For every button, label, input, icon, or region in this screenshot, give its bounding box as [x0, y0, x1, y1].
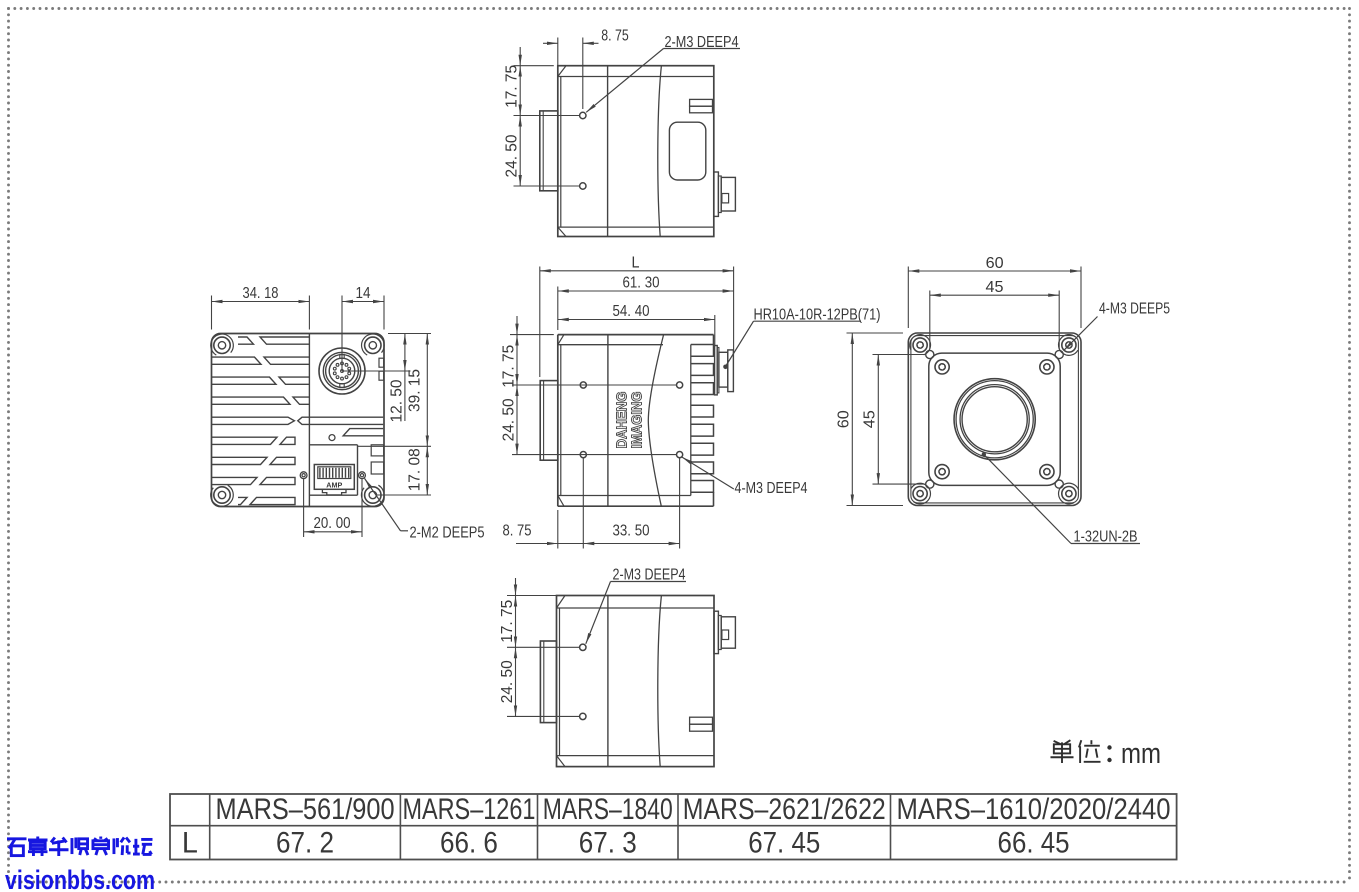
svg-text:17. 75: 17. 75	[500, 345, 517, 388]
svg-text:12. 50: 12. 50	[388, 379, 405, 422]
svg-text:MARS–1261: MARS–1261	[402, 793, 535, 826]
svg-text:HR10A-10R-12PB(71): HR10A-10R-12PB(71)	[754, 306, 881, 323]
svg-text:45: 45	[986, 279, 1004, 296]
svg-text:24. 50: 24. 50	[500, 398, 517, 441]
svg-text:2-M2 DEEP5: 2-M2 DEEP5	[410, 524, 485, 541]
svg-text:24. 50: 24. 50	[504, 134, 521, 177]
svg-text:2-M3 DEEP4: 2-M3 DEEP4	[613, 566, 686, 583]
svg-text:67. 45: 67. 45	[748, 826, 820, 859]
svg-text:60: 60	[986, 255, 1004, 272]
svg-text:MARS–561/900: MARS–561/900	[216, 793, 395, 826]
svg-text:AMP: AMP	[326, 481, 342, 490]
svg-text:MARS–1840: MARS–1840	[543, 793, 673, 826]
svg-text:IMAGING: IMAGING	[630, 392, 646, 449]
svg-text:20. 00: 20. 00	[314, 515, 351, 532]
svg-text:67. 3: 67. 3	[579, 826, 637, 859]
svg-text:24. 50: 24. 50	[499, 660, 516, 703]
svg-text:66. 6: 66. 6	[440, 826, 498, 859]
svg-text:MARS–2621/2622: MARS–2621/2622	[683, 793, 886, 826]
svg-text:L: L	[182, 826, 198, 859]
svg-text:MARS–1610/2020/2440: MARS–1610/2020/2440	[897, 793, 1171, 826]
svg-text:17. 75: 17. 75	[504, 65, 521, 108]
svg-text:8. 75: 8. 75	[503, 523, 532, 540]
svg-text:67. 2: 67. 2	[276, 826, 334, 859]
svg-text:61. 30: 61. 30	[623, 275, 660, 292]
svg-text:DAHENG: DAHENG	[615, 392, 631, 449]
svg-text:mm: mm	[1121, 738, 1161, 770]
svg-text:1-32UN-2B: 1-32UN-2B	[1074, 529, 1138, 546]
svg-text:4-M3 DEEP5: 4-M3 DEEP5	[1099, 301, 1170, 318]
svg-text:60: 60	[836, 410, 853, 428]
svg-text:54. 40: 54. 40	[613, 303, 650, 320]
svg-text:45: 45	[862, 410, 879, 428]
svg-text:66. 45: 66. 45	[998, 826, 1070, 859]
svg-text:2-M3 DEEP4: 2-M3 DEEP4	[665, 34, 739, 51]
svg-text:17. 75: 17. 75	[499, 600, 516, 643]
svg-text:39. 15: 39. 15	[407, 369, 424, 412]
svg-text:14: 14	[356, 285, 371, 302]
svg-text:17. 08: 17. 08	[407, 448, 424, 491]
svg-text:33. 50: 33. 50	[613, 523, 650, 540]
svg-text:34. 18: 34. 18	[243, 285, 279, 302]
svg-text:visionbbs.com: visionbbs.com	[5, 865, 155, 892]
svg-text:4-M3 DEEP4: 4-M3 DEEP4	[735, 480, 808, 497]
svg-text:8. 75: 8. 75	[601, 28, 629, 45]
svg-text:L: L	[632, 255, 640, 272]
